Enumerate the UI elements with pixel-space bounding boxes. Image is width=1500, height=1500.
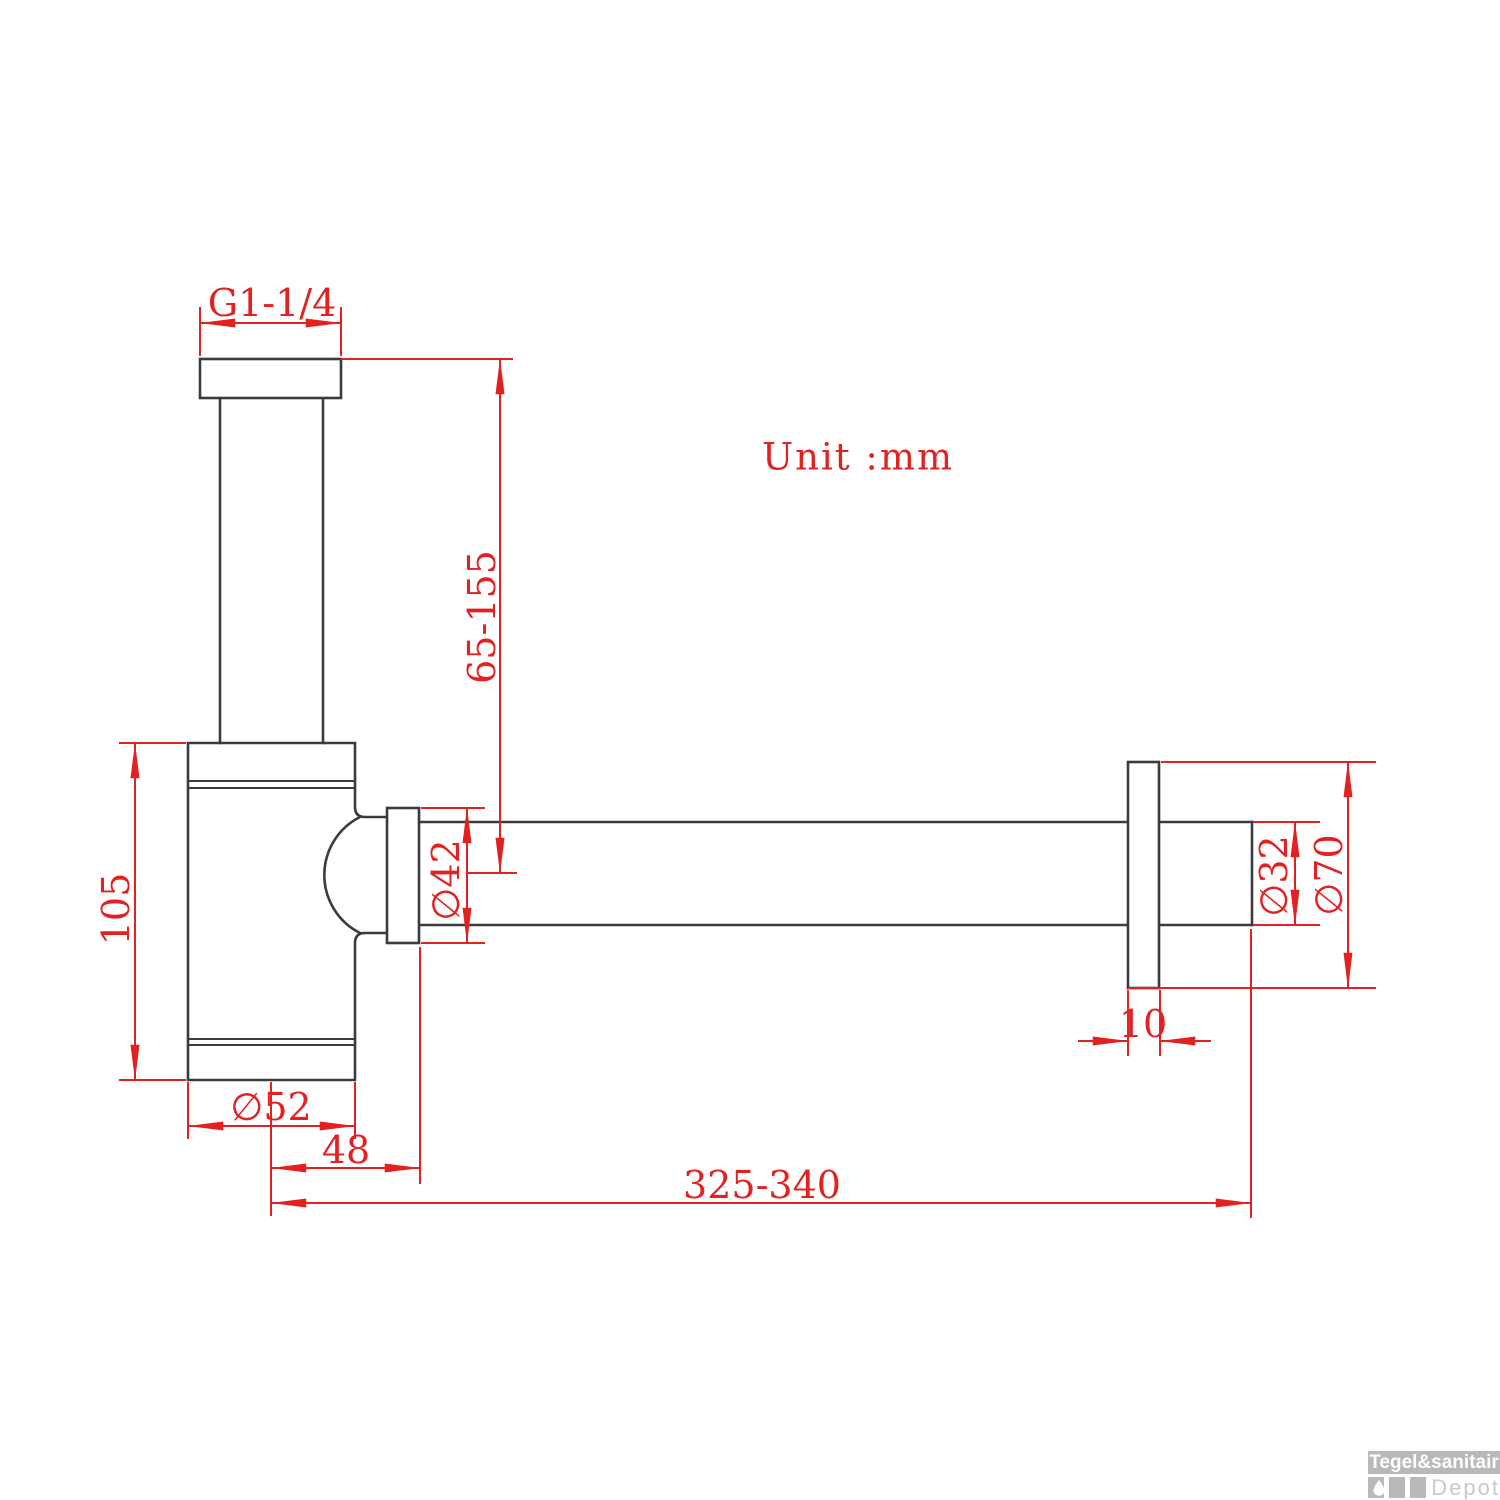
watermark-square xyxy=(1410,1477,1426,1498)
dim-offset: 48 xyxy=(271,947,420,1216)
dim-body-height: 105 xyxy=(94,743,186,1080)
wall-flange xyxy=(1128,762,1159,988)
dim-label-total-length: 325-340 xyxy=(683,1163,841,1207)
dim-label-nut-diameter: ∅42 xyxy=(424,839,468,920)
dim-thread: G1-1/4 xyxy=(200,281,341,356)
dim-inlet-height: 65-155 xyxy=(341,359,517,873)
dim-label-rosette-thickness: 10 xyxy=(1119,1002,1167,1046)
watermark-brand: Tegel&sanitair xyxy=(1368,1451,1500,1474)
unit-note: Unit :mm xyxy=(762,436,954,479)
dim-label-body-height: 105 xyxy=(94,873,138,946)
watermark-square xyxy=(1389,1477,1405,1498)
dim-nut-diameter: ∅42 xyxy=(421,808,485,943)
droplet-icon xyxy=(1368,1477,1384,1498)
dim-label-rosette-diameter: ∅70 xyxy=(1307,834,1351,915)
siphon-outline xyxy=(188,359,1252,1080)
dim-label-inlet-height: 65-155 xyxy=(460,550,504,684)
dimension-annotations: G1-1/4 65-155 ∅42 105 xyxy=(94,281,1376,1218)
dim-rosette-thickness: 10 xyxy=(1078,990,1211,1056)
compression-nut xyxy=(387,808,419,943)
technical-drawing: G1-1/4 65-155 ∅42 105 xyxy=(0,0,1500,1500)
dim-label-pipe-diameter: ∅32 xyxy=(1252,835,1296,916)
watermark-sub-brand: Depot xyxy=(1431,1477,1500,1498)
drawing-canvas: G1-1/4 65-155 ∅42 105 xyxy=(0,0,1500,1500)
watermark-row: Depot xyxy=(1368,1477,1500,1498)
watermark: Tegel&sanitair Depot xyxy=(1360,1451,1500,1498)
ball-joint-arc xyxy=(324,817,360,933)
trap-body xyxy=(188,743,387,1080)
dim-label-offset: 48 xyxy=(322,1128,370,1172)
inlet-cap xyxy=(200,359,341,398)
dim-label-thread: G1-1/4 xyxy=(208,281,337,325)
dim-total-length: 325-340 xyxy=(271,929,1251,1218)
